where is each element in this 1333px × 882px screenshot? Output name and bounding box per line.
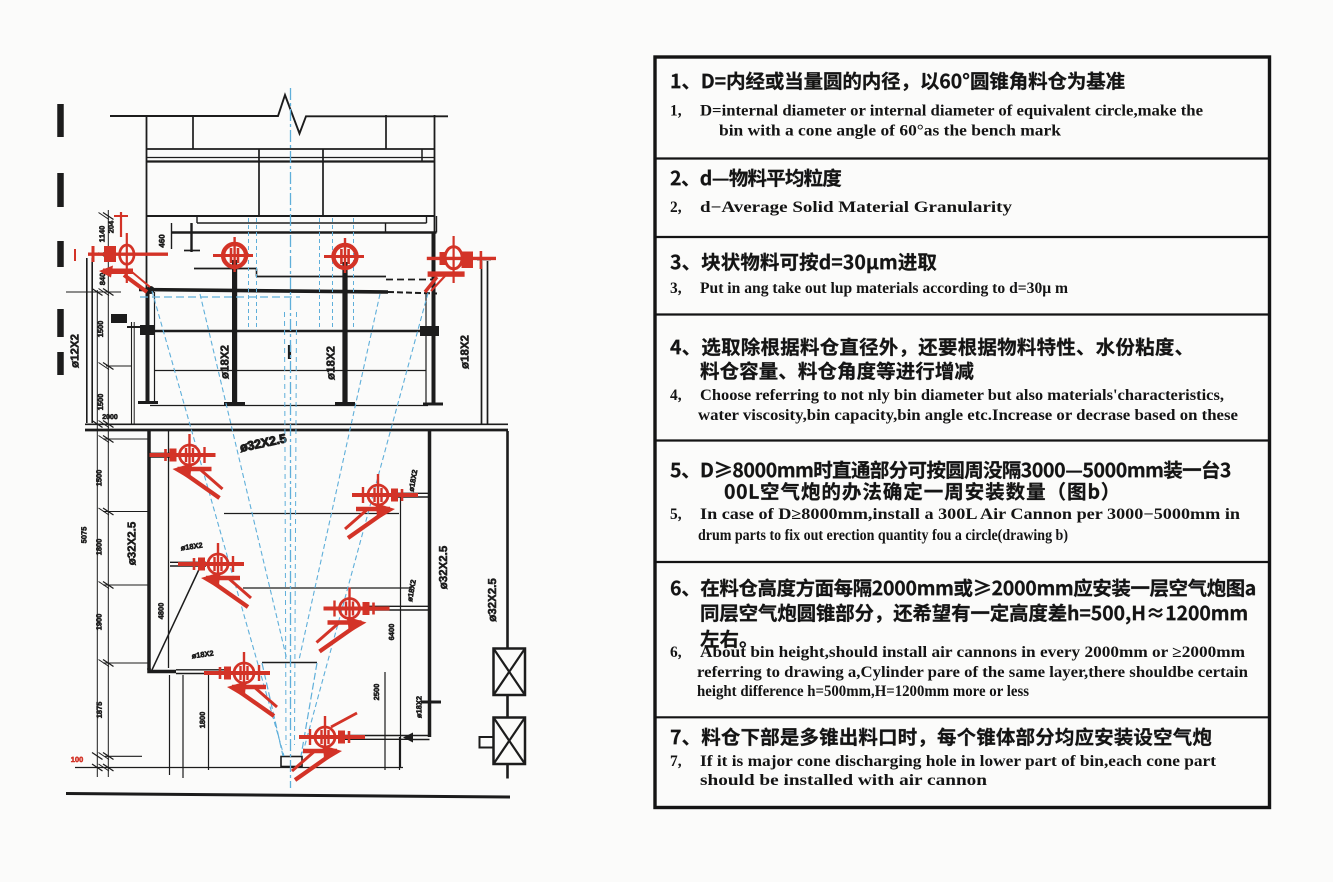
svg-text:Choose referring to not nly bi: Choose referring to not nly bin diameter… [700, 387, 1224, 404]
svg-text:Put in ang take out lup materi: Put in ang take out lup materials accord… [700, 280, 1068, 297]
svg-text:4,: 4, [670, 387, 682, 404]
svg-text:2,: 2, [670, 199, 682, 216]
svg-text:If it is major cone dischargin: If it is major cone discharging hole in … [700, 753, 1217, 770]
svg-text:should be installed with air c: should be installed with air cannon [700, 772, 988, 789]
svg-text:height difference h=500mm,H=12: height difference h=500mm,H=1200mm more … [697, 683, 1029, 700]
svg-text:1,: 1, [670, 103, 682, 120]
svg-text:5,: 5, [670, 506, 682, 523]
svg-text:6,: 6, [670, 644, 682, 661]
svg-text:referring to drawing a,Cylinde: referring to drawing a,Cylinder pare of … [697, 664, 1248, 681]
svg-text:bin with a cone angle of 60°as: bin with a cone angle of 60°as the bench… [719, 123, 1061, 140]
svg-text:7,: 7, [670, 753, 682, 770]
svg-text:water viscosity,bin capacity,b: water viscosity,bin capacity,bin angle e… [698, 407, 1238, 424]
svg-text:About bin height,should instal: About bin height,should install air cann… [700, 644, 1245, 661]
svg-text:In case of D≥8000mm,install a: In case of D≥8000mm,install a 300L Air C… [700, 506, 1241, 523]
svg-text:D=internal diameter or interna: D=internal diameter or internal diameter… [700, 103, 1203, 120]
svg-text:drum parts to fix out erection: drum parts to fix out erection quantity … [698, 527, 1068, 544]
svg-text:d−Average Solid Material Granu: d−Average Solid Material Granularity [700, 199, 1012, 216]
svg-text:3,: 3, [670, 280, 682, 297]
